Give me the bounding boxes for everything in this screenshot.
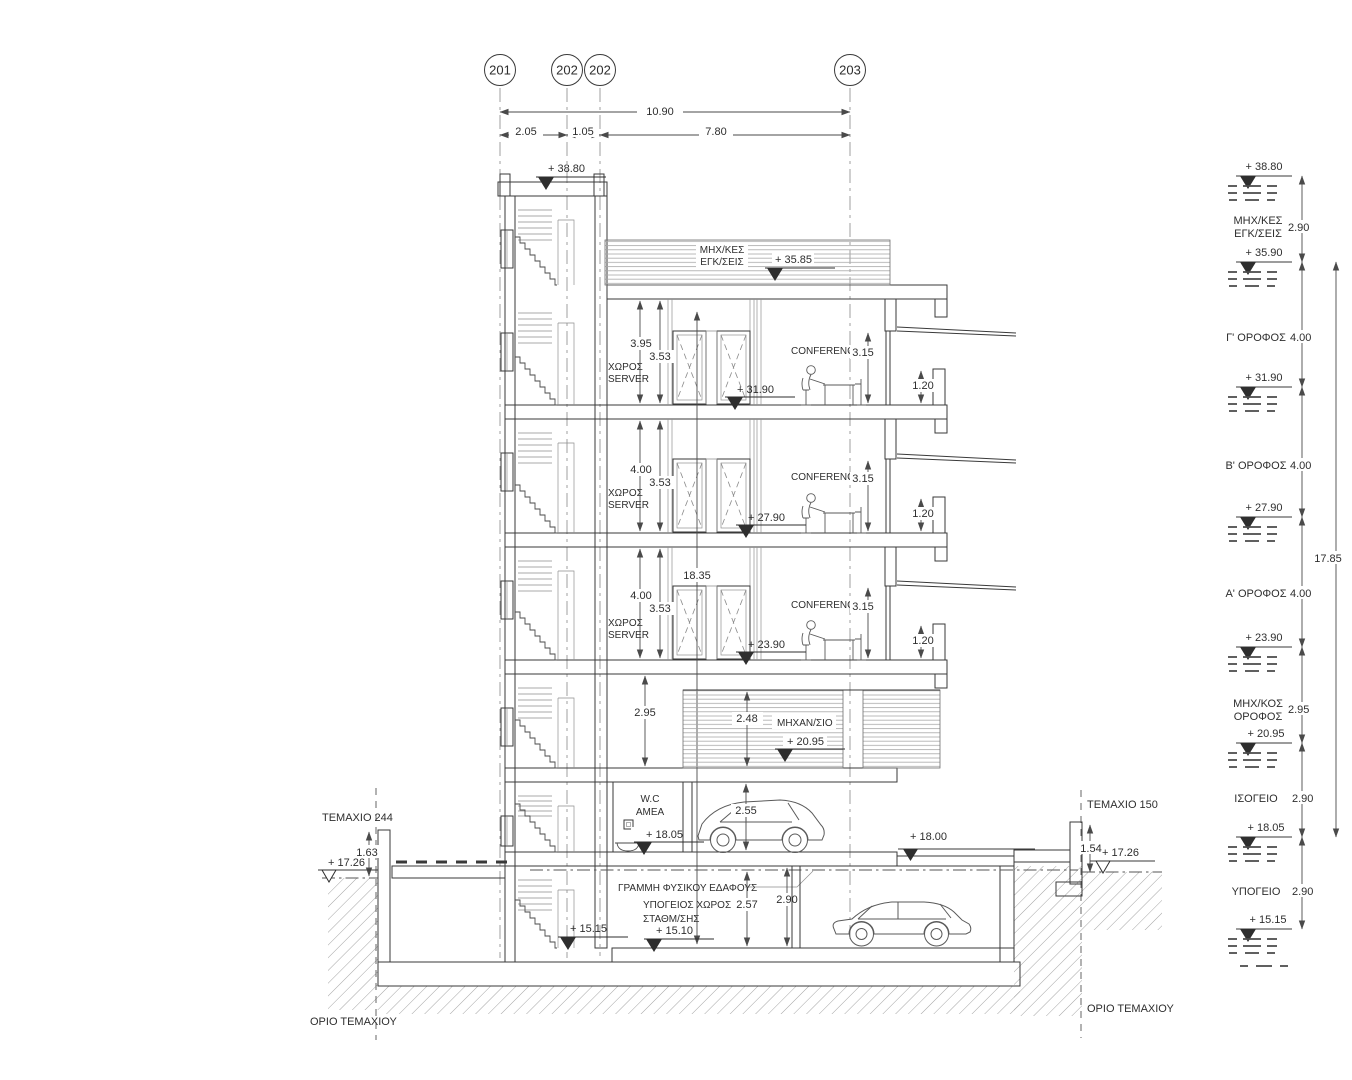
dim-bay-a: 2.05 [515,126,536,138]
plot-label-left: TEMAXIO 244 [322,812,393,824]
roof-level-text: + 38.80 [548,163,585,175]
dim-total-width: 10.90 [646,106,674,118]
room-label-server-1: ΧΩΡΟΣ [608,362,643,373]
legend-storey-4h: 2.95 [1288,704,1309,716]
left-facade-wall [505,196,515,962]
legend-storey-5a: ΙΣΟΓΕΙΟ [1234,793,1278,805]
room-label-wc-1: W.C [641,794,660,805]
dim-car-height: 2.55 [735,805,756,817]
room-label-server-2: SERVER [608,374,649,385]
legend-level-1: + 35.90 [1245,247,1282,259]
room-label-server-2: SERVER [608,630,649,641]
section-drawing-page: 201 202 202 203 10.90 2.05 1.05 7.80 TEM… [0,0,1352,1080]
basement: ΥΠΟΓΕΙΟΣ ΧΩΡΟΣ ΣΤΑΘΜ/ΣΗΣ + 15.10 2.57 2.… [643,866,971,952]
legend-storey-1a: Γ' ΟΡΟΦΟΣ [1226,332,1286,344]
level-marker-basement [644,939,714,952]
canopy-fin [897,454,1016,463]
level-marker-roof [536,177,606,190]
legend-level-5: + 20.95 [1247,728,1284,740]
grid-bubbles: 201 202 202 203 [485,55,866,86]
boundary-label-right: ΟΡΙΟ ΤΕΜΑΧΙΟΥ [1087,1003,1175,1015]
room-label-server-1: ΧΩΡΟΣ [608,618,643,629]
legend-storey-1h: 4.00 [1290,332,1311,344]
level-marker-floor [736,652,806,665]
dim-room-height: 3.95 [630,338,651,350]
stair-basement-level: + 15.15 [570,923,607,935]
dim-room-height: 4.00 [630,590,651,602]
legend-total-height: 17.85 [1314,553,1342,565]
basement-column [792,866,800,948]
ground-level-left: + 17.26 [328,857,365,869]
stair-flight [515,796,574,852]
legend-storey-2h: 4.00 [1290,460,1311,472]
person-at-desk-figure [801,366,866,405]
stair-flight [515,433,574,533]
floor-level-text: + 27.90 [748,512,785,524]
legend-storey-0h: 2.90 [1288,222,1309,234]
stair-flight [515,210,574,285]
dim-clear-height: 3.53 [649,477,670,489]
basement-level-text: + 15.10 [656,925,693,937]
foundation-slab [378,962,1020,986]
ground-line-label: ΓΡΑΜΜΗ ΦΥΣΙΚΟΥ ΕΔΑΦΟΥΣ [618,883,757,894]
dim-shaft-total: 18.35 [683,570,711,582]
room-label-server-2: SERVER [608,500,649,511]
floor-gamma: 3.95 3.53 ΧΩΡΟΣ SERVER CONFERENCE 3.15 +… [608,299,1016,410]
dim-conf-height: 3.15 [852,473,873,485]
dim-clear-height: 3.53 [649,351,670,363]
dim-bay-b: 1.05 [572,126,593,138]
grid-bubble-202a: 202 [556,63,578,78]
legend-level-4: + 23.90 [1245,632,1282,644]
legend-storey-0a: ΜΗΧ/ΚΕΣ [1234,215,1283,227]
legend-storey-6a: ΥΠΟΓΕΙΟ [1232,886,1281,898]
dim-basement-height: 2.90 [776,894,797,906]
legend-storey-6h: 2.90 [1292,886,1313,898]
stair-flight [515,313,574,405]
plant-room-label-1: ΜΗΧ/ΚΕΣ [700,245,745,256]
grid-bubble-202b: 202 [589,63,611,78]
terrace-level-text: + 18.00 [910,831,947,843]
section-drawing: 201 202 202 203 10.90 2.05 1.05 7.80 TEM… [0,0,1352,1080]
legend-level-6: + 18.05 [1247,822,1284,834]
dim-basement-clear: 2.57 [736,899,757,911]
ground-level-right: + 17.26 [1102,847,1139,859]
dim-conf-height: 3.15 [852,601,873,613]
structure-slabs [498,174,1014,962]
legend-level-0: + 38.80 [1245,161,1282,173]
wc-basin-icon [615,843,641,851]
ground-level-text: + 18.05 [646,829,683,841]
plot-label-right: TEMAXIO 150 [1087,799,1158,811]
dim-mech-left: 2.95 [634,707,655,719]
level-marker-floor [725,397,795,410]
legend-storey-5h: 2.90 [1292,793,1313,805]
person-at-desk-figure [801,621,866,660]
legend-storey-3a: Α' ΟΡΟΦΟΣ [1225,588,1286,600]
legend-level-2: + 31.90 [1245,372,1282,384]
open-level-marker-right [1096,861,1110,873]
plant-room-label-2: ΕΓΚ/ΣΕΙΣ [700,257,743,268]
dim-wall-right: 1.54 [1080,843,1101,855]
dim-bay-c: 7.80 [705,126,726,138]
grid-bubble-201: 201 [489,63,511,78]
legend-level-3: + 27.90 [1245,502,1282,514]
mech-level-text: + 20.95 [787,736,824,748]
legend-storey-3h: 4.00 [1290,588,1311,600]
grid-bubble-203: 203 [839,63,861,78]
level-marker-floor [736,525,806,538]
plant-level-text: + 35.85 [775,254,812,266]
stair-flight [515,688,574,768]
dim-conf-height: 3.15 [852,347,873,359]
room-label-basement-1: ΥΠΟΓΕΙΟΣ ΧΩΡΟΣ [643,900,731,911]
legend-storey-0b: ΕΓΚ/ΣΕΙΣ [1234,228,1282,240]
legend-storey-4a: ΜΗΧ/ΚΟΣ [1233,698,1283,710]
room-label-mech: ΜΗΧΑΝ/ΣΙΟ [777,718,833,729]
dim-room-height: 4.00 [630,464,651,476]
room-label-basement-2: ΣΤΑΘΜ/ΣΗΣ [643,914,699,925]
ground-floor: W.C AMEA + 18.05 2.55 + 18.00 ΓΡΑΜΜΗ ΦΥΣ… [530,782,1078,894]
level-legend: 17.85 + 38.80 ΜΗΧ/ΚΕΣ ΕΓΚ/ΣΕΙΣ 2.90 + 35… [1225,161,1348,966]
structure-walls [505,196,1014,962]
car-sedan [833,902,971,946]
dim-clear-height: 3.53 [649,603,670,615]
dim-mech-mid: 2.48 [736,713,757,725]
roof-plant-zone: ΜΗΧ/ΚΕΣ ΕΓΚ/ΣΕΙΣ + 35.85 [605,240,890,285]
person-at-desk-figure [801,494,866,533]
floor-beta: 4.00 3.53 ΧΩΡΟΣ SERVER CONFERENCE 3.15 +… [608,419,1016,538]
dim-parapet: 1.20 [912,508,933,520]
level-marker-ground [634,842,704,855]
dim-parapet: 1.20 [912,635,933,647]
canopy-fin [897,327,1016,336]
legend-storey-4b: ΟΡΟΦΟΣ [1234,711,1283,723]
room-label-server-1: ΧΩΡΟΣ [608,488,643,499]
stair-flight [515,561,574,660]
louver-panel [863,690,940,768]
dim-parapet: 1.20 [912,380,933,392]
boundary-label-left: ΟΡΙΟ ΤΕΜΑΧΙΟΥ [310,1016,398,1028]
mech-floor: 2.95 2.48 ΜΗΧΑΝ/ΣΙΟ + 20.95 [630,676,940,768]
legend-storey-2a: Β' ΟΡΟΦΟΣ [1225,460,1286,472]
floor-level-text: + 23.90 [748,639,785,651]
floor-level-text: + 31.90 [737,384,774,396]
top-dimensions: 10.90 2.05 1.05 7.80 [500,104,850,138]
canopy-fin [897,581,1016,590]
facade-windows [501,230,513,846]
stair-core-wall [595,196,607,948]
legend-level-7: + 15.15 [1249,914,1286,926]
room-label-wc-2: AMEA [636,807,665,818]
